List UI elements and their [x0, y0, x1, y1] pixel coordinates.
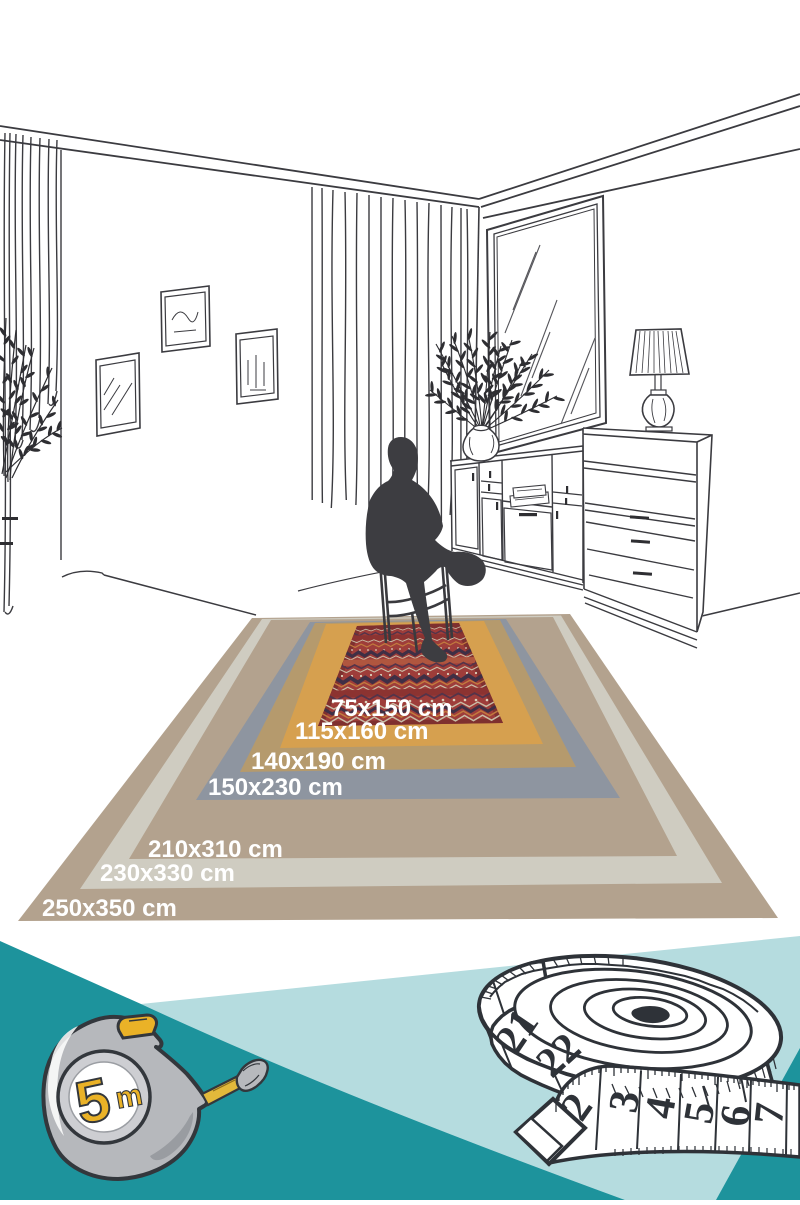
- svg-text:210x310 cm: 210x310 cm: [148, 836, 283, 863]
- svg-text:115x160 cm: 115x160 cm: [295, 718, 428, 745]
- svg-text:140x190 cm: 140x190 cm: [251, 748, 386, 775]
- svg-text:250x350 cm: 250x350 cm: [42, 895, 177, 922]
- svg-text:150x230 cm: 150x230 cm: [208, 774, 343, 801]
- svg-text:230x330 cm: 230x330 cm: [100, 860, 235, 887]
- svg-text:m: m: [113, 1078, 145, 1115]
